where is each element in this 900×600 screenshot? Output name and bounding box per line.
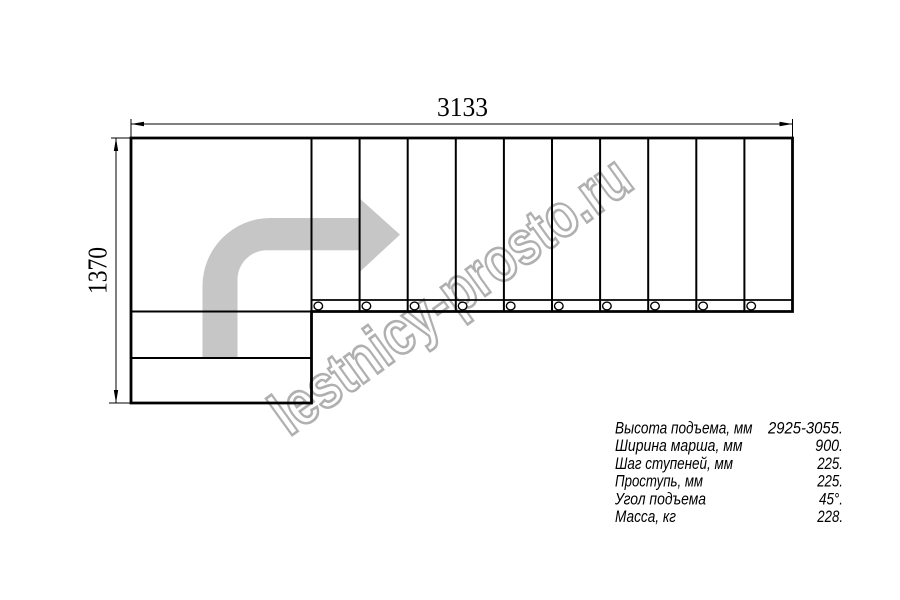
svg-text:228.: 228. <box>816 508 843 526</box>
svg-text:Шаг ступеней, мм: Шаг ступеней, мм <box>615 455 733 473</box>
svg-text:225.: 225. <box>816 473 843 491</box>
svg-text:45°.: 45°. <box>819 490 843 508</box>
svg-text:Проступь, мм: Проступь, мм <box>615 473 703 491</box>
svg-text:3133: 3133 <box>437 92 488 122</box>
svg-text:Масса, кг: Масса, кг <box>615 508 676 526</box>
svg-text:Угол подъема: Угол подъема <box>614 490 706 508</box>
svg-text:900.: 900. <box>815 437 843 455</box>
svg-text:Высота подъема, мм: Высота подъема, мм <box>615 420 753 438</box>
svg-text:1370: 1370 <box>83 247 113 294</box>
svg-text:225.: 225. <box>816 455 843 473</box>
svg-text:Ширина марша, мм: Ширина марша, мм <box>615 437 743 455</box>
svg-text:2925-3055.: 2925-3055. <box>767 420 843 438</box>
